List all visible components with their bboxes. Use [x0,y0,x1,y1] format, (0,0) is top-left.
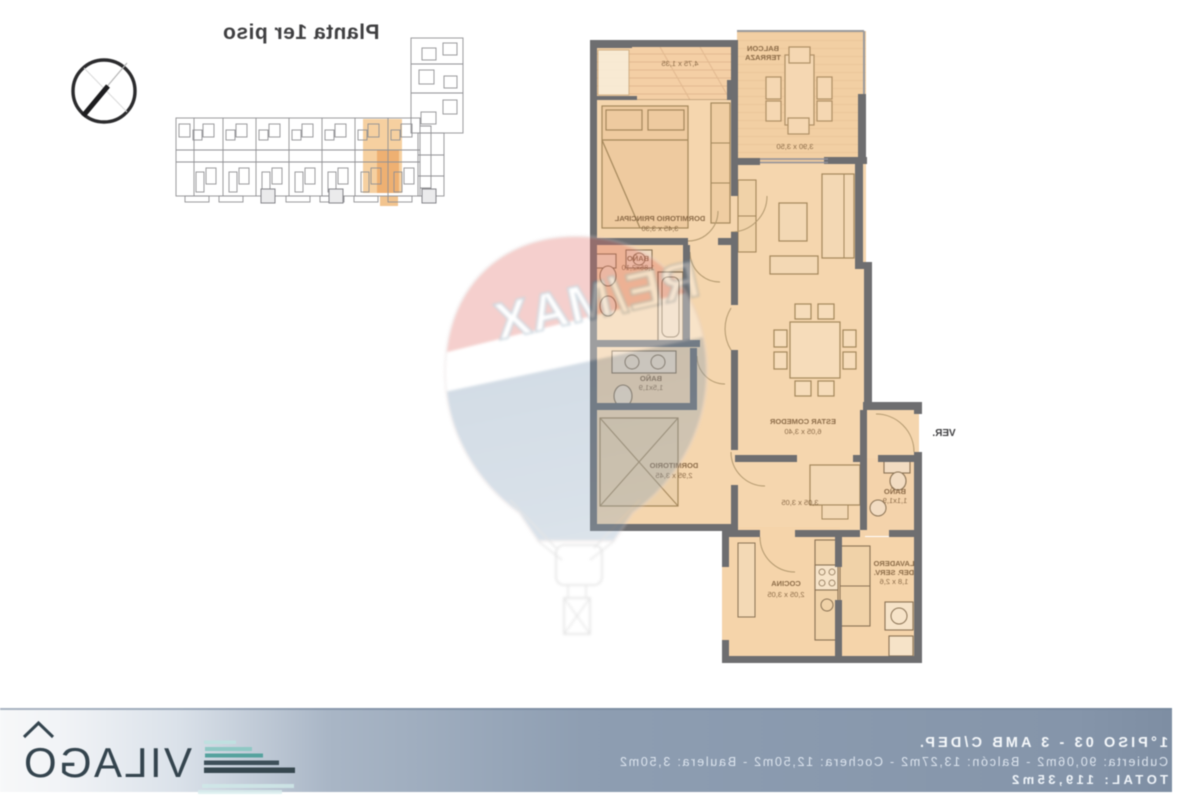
svg-text:1°PISO 03 - 3 AMB C/DEP.: 1°PISO 03 - 3 AMB C/DEP. [920,735,1168,751]
svg-text:3,90 x 3,50: 3,90 x 3,50 [776,142,813,151]
svg-text:Planta 1er piso: Planta 1er piso [223,21,380,44]
svg-text:1,1x1,9: 1,1x1,9 [883,496,908,505]
svg-text:COCINA: COCINA [771,579,801,588]
svg-text:LAVADERO: LAVADERO [873,559,914,568]
svg-text:2,05 x 3,05: 2,05 x 3,05 [767,590,804,599]
svg-text:3,45 x 3,30: 3,45 x 3,30 [641,224,678,233]
svg-text:DORMITORIO PRINCIPAL: DORMITORIO PRINCIPAL [614,214,705,223]
svg-text:Cubierta: 90,06m2 - Balcón: 13: Cubierta: 90,06m2 - Balcón: 13,27m2 - Co… [620,755,1168,769]
svg-text:DEP. SERV.: DEP. SERV. [874,568,914,577]
svg-text:3,05 x 3,05: 3,05 x 3,05 [781,498,818,507]
svg-text:ESTAR COMEDOR: ESTAR COMEDOR [769,417,836,426]
svg-text:4,75 x 1,35: 4,75 x 1,35 [661,59,698,68]
svg-text:6,05 x 3,40: 6,05 x 3,40 [784,427,821,436]
svg-text:TERRAZA: TERRAZA [745,53,781,62]
svg-text:BAÑO: BAÑO [884,487,906,496]
svg-text:1,8 x 2,6: 1,8 x 2,6 [880,577,909,586]
svg-text:VILAGO: VILAGO [24,739,192,786]
svg-text:VER.: VER. [932,428,956,439]
svg-text:BALCON: BALCON [747,44,779,53]
